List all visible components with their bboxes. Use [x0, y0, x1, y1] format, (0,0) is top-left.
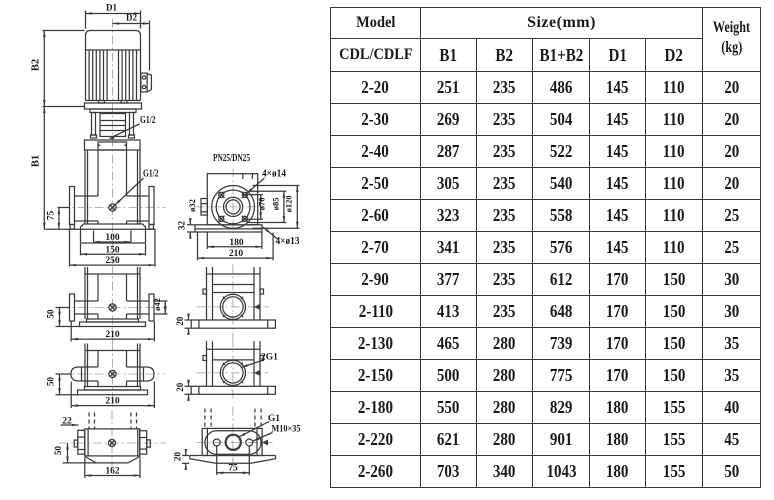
svg-text:ø42: ø42	[152, 298, 162, 311]
svg-text:G1/2: G1/2	[140, 115, 156, 126]
svg-text:G1: G1	[268, 414, 280, 424]
svg-text:M10×35: M10×35	[272, 425, 301, 435]
svg-text:162: 162	[105, 466, 120, 476]
svg-text:2G1: 2G1	[261, 352, 278, 362]
svg-text:ø120: ø120	[283, 195, 293, 212]
svg-text:75: 75	[228, 464, 238, 474]
svg-text:D1: D1	[106, 3, 117, 13]
svg-text:ø32: ø32	[187, 199, 197, 212]
svg-text:G1/2: G1/2	[143, 169, 159, 180]
svg-text:20: 20	[172, 452, 182, 462]
svg-text:210: 210	[105, 396, 120, 406]
svg-text:D2: D2	[126, 13, 137, 23]
svg-text:100: 100	[105, 233, 120, 243]
svg-text:20: 20	[175, 382, 185, 392]
svg-text:ø70: ø70	[256, 198, 266, 211]
svg-text:B1: B1	[31, 155, 42, 167]
svg-text:180: 180	[229, 238, 244, 248]
svg-text:75: 75	[47, 211, 57, 221]
svg-text:ø85: ø85	[271, 198, 281, 211]
svg-text:50: 50	[46, 309, 56, 319]
svg-text:PN25/DN25: PN25/DN25	[213, 153, 250, 164]
svg-text:50: 50	[46, 377, 56, 387]
svg-text:32: 32	[176, 221, 186, 231]
svg-text:150: 150	[105, 246, 120, 256]
svg-text:50: 50	[53, 446, 63, 456]
svg-text:4×ø14: 4×ø14	[262, 169, 286, 180]
svg-text:4×ø13: 4×ø13	[276, 236, 300, 247]
svg-text:210: 210	[229, 249, 244, 259]
svg-text:20: 20	[175, 316, 185, 326]
svg-text:210: 210	[105, 330, 120, 340]
svg-text:B2: B2	[31, 59, 42, 71]
